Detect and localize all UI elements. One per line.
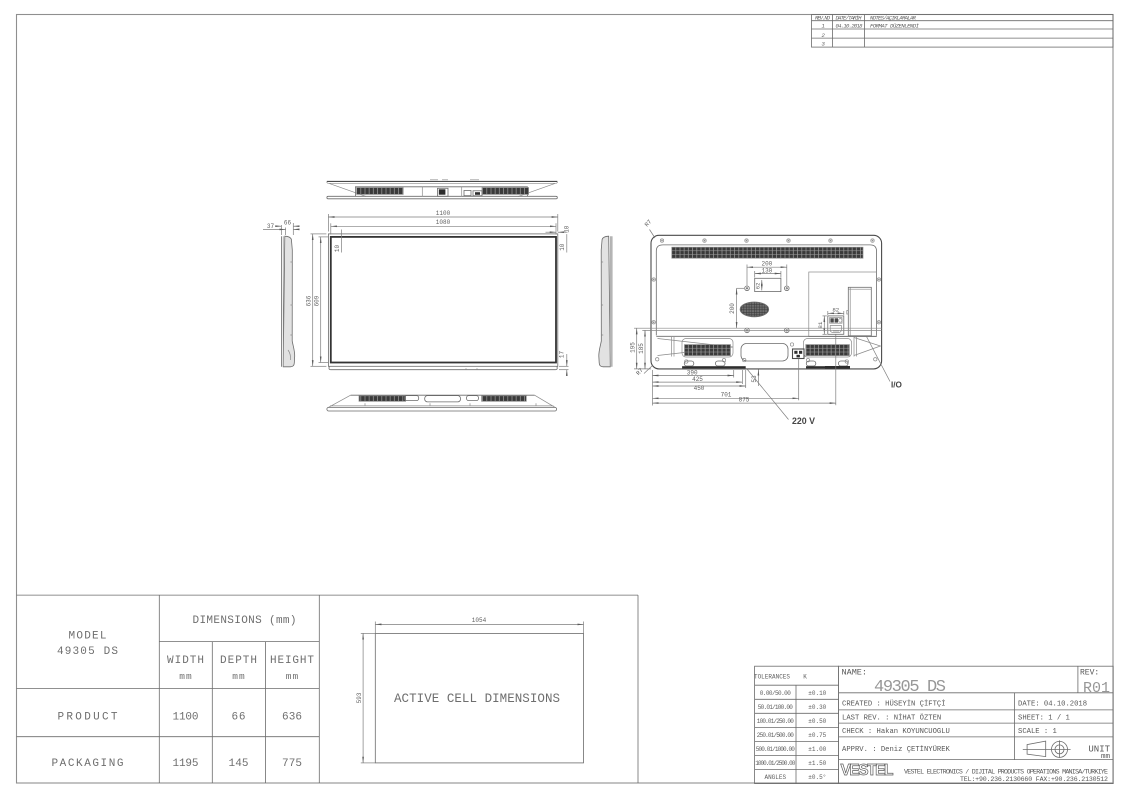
svg-text:SHEET: 1 / 1: SHEET: 1 / 1 — [1018, 715, 1070, 723]
svg-text:450: 450 — [694, 385, 705, 392]
svg-text:1000.01/2500.00: 1000.01/2500.00 — [755, 760, 795, 767]
svg-text:REV:: REV: — [1080, 669, 1099, 678]
svg-text:17: 17 — [559, 351, 566, 359]
svg-text:593: 593 — [356, 692, 363, 703]
svg-text:±0.10: ±0.10 — [808, 690, 826, 697]
svg-text:37: 37 — [267, 223, 275, 230]
svg-text:04.10.2018: 04.10.2018 — [836, 23, 864, 30]
svg-text:62: 62 — [755, 283, 762, 290]
svg-text:875: 875 — [739, 397, 750, 404]
svg-text:CREATED : HÜSEYİN ÇİFTÇİ: CREATED : HÜSEYİN ÇİFTÇİ — [842, 700, 946, 709]
svg-text:49305 DS: 49305 DS — [57, 646, 119, 658]
svg-text:49305 DS: 49305 DS — [874, 678, 946, 697]
svg-text:±0.75: ±0.75 — [808, 732, 826, 739]
svg-text:LAST REV. : NİHAT ÖZTEN: LAST REV. : NİHAT ÖZTEN — [842, 714, 941, 723]
svg-text:I/O: I/O — [891, 381, 903, 390]
svg-text:425: 425 — [692, 376, 703, 383]
svg-text:636: 636 — [282, 712, 303, 724]
svg-text:WIDTH: WIDTH — [167, 655, 205, 667]
svg-text:82: 82 — [832, 307, 839, 314]
svg-text:±0.50: ±0.50 — [808, 718, 826, 725]
svg-text:FORMAT DÜZENLENDİ: FORMAT DÜZENLENDİ — [870, 23, 920, 30]
svg-text:VESTEL ELECTRONICS / DIJITAL P: VESTEL ELECTRONICS / DIJITAL PRODUCTS OP… — [904, 769, 1108, 776]
svg-text:53: 53 — [751, 375, 758, 383]
svg-text:APPRV. : Deniz ÇETİNYÜREK: APPRV. : Deniz ÇETİNYÜREK — [842, 745, 951, 754]
svg-text:609: 609 — [313, 295, 320, 306]
svg-text:185: 185 — [638, 343, 645, 354]
svg-text:±1.00: ±1.00 — [808, 746, 826, 753]
svg-text:HEIGHT: HEIGHT — [270, 655, 315, 667]
svg-text:220 V: 220 V — [792, 416, 815, 426]
svg-text:VESTEL: VESTEL — [841, 762, 894, 779]
svg-text:1: 1 — [822, 23, 825, 30]
svg-text:0.00/50.00: 0.00/50.00 — [760, 690, 791, 697]
svg-text:50.01/100.00: 50.01/100.00 — [758, 704, 793, 711]
svg-text:mm: mm — [232, 671, 245, 682]
svg-text:195: 195 — [630, 342, 637, 353]
svg-text:±0.5°: ±0.5° — [808, 774, 826, 781]
svg-text:PACKAGING: PACKAGING — [52, 758, 125, 770]
svg-text:PRODUCT: PRODUCT — [58, 712, 119, 724]
svg-text:10: 10 — [334, 245, 341, 253]
svg-text:NOTES/AÇIKLAMALAR: NOTES/AÇIKLAMALAR — [870, 15, 917, 22]
svg-text:775: 775 — [282, 758, 303, 770]
svg-text:DATE: 04.10.2018: DATE: 04.10.2018 — [1018, 701, 1087, 709]
svg-text:±0.30: ±0.30 — [808, 704, 826, 711]
svg-text:81: 81 — [817, 321, 824, 328]
svg-text:130: 130 — [761, 267, 772, 274]
svg-text:701: 701 — [721, 392, 732, 399]
svg-text:636: 636 — [305, 295, 312, 306]
svg-text:66: 66 — [284, 220, 292, 227]
svg-text:145: 145 — [229, 758, 250, 770]
svg-text:500.01/1000.00: 500.01/1000.00 — [756, 746, 795, 753]
svg-text:mm: mm — [1101, 753, 1111, 761]
svg-text:TOLERANCES: TOLERANCES — [754, 674, 790, 681]
svg-text:1080: 1080 — [436, 219, 451, 226]
svg-text:TEL:+90.236.2130660 FAX:+90.23: TEL:+90.236.2130660 FAX:+90.236.2130512 — [960, 776, 1108, 783]
svg-text:10: 10 — [559, 243, 566, 251]
svg-text:R01: R01 — [1083, 680, 1110, 697]
svg-text:100.01/250.00: 100.01/250.00 — [757, 718, 794, 725]
svg-text:DEPTH: DEPTH — [220, 655, 258, 667]
svg-text:CHECK : Hakan KOYUNCUOGLU: CHECK : Hakan KOYUNCUOGLU — [842, 728, 950, 736]
svg-text:1195: 1195 — [173, 758, 200, 770]
svg-text:200: 200 — [729, 303, 736, 314]
svg-text:K: K — [803, 674, 807, 681]
svg-text:MODEL: MODEL — [69, 631, 108, 643]
svg-text:REV.NO: REV.NO — [815, 15, 831, 22]
svg-text:mm: mm — [179, 671, 192, 682]
svg-text:1054: 1054 — [472, 617, 487, 624]
svg-text:10: 10 — [564, 225, 571, 233]
svg-text:DIMENSIONS (mm): DIMENSIONS (mm) — [193, 615, 298, 627]
svg-text:SCALE : 1: SCALE : 1 — [1018, 728, 1057, 736]
svg-text:66: 66 — [232, 712, 247, 724]
svg-text:ACTIVE CELL DIMENSIONS: ACTIVE CELL DIMENSIONS — [394, 692, 561, 706]
svg-text:1100: 1100 — [436, 210, 451, 217]
svg-text:250.01/500.00: 250.01/500.00 — [757, 732, 794, 739]
svg-text:ANGLES: ANGLES — [764, 774, 786, 781]
svg-text:±1.50: ±1.50 — [808, 760, 826, 767]
svg-text:DATE/TARİH: DATE/TARİH — [836, 15, 863, 22]
svg-text:mm: mm — [286, 671, 299, 682]
svg-text:NAME:: NAME: — [842, 668, 868, 678]
svg-text:1100: 1100 — [173, 712, 200, 724]
